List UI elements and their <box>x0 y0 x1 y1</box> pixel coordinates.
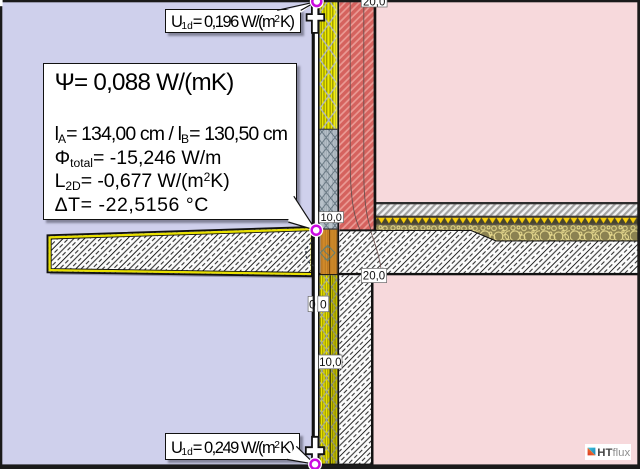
svg-text:HTflux: HTflux <box>597 447 630 459</box>
svg-text:20,0: 20,0 <box>363 271 385 283</box>
svg-text:10,0: 10,0 <box>320 212 341 224</box>
svg-text:0: 0 <box>320 297 327 311</box>
svg-text:0: 0 <box>309 297 316 311</box>
svg-text:10,0: 10,0 <box>319 357 341 369</box>
svg-text:20,0: 20,0 <box>363 0 385 9</box>
